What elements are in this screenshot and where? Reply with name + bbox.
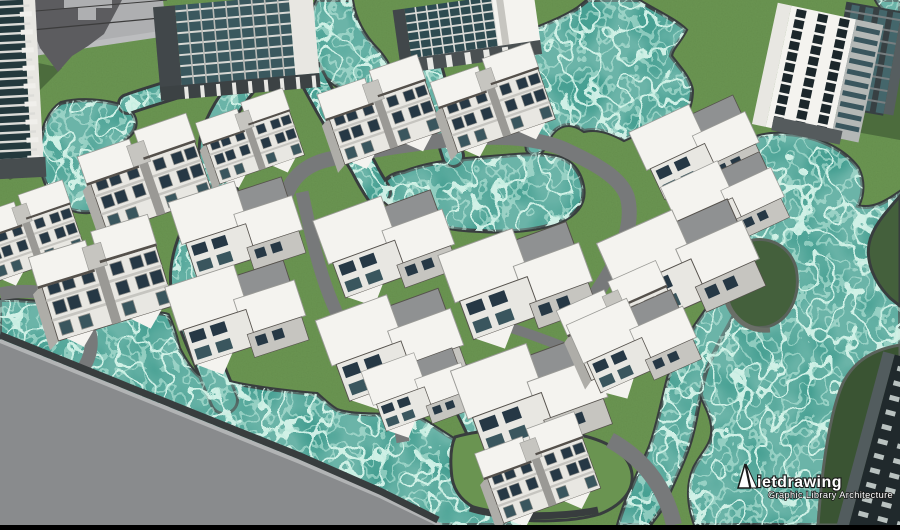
svg-text:ietdrawing: ietdrawing (757, 474, 842, 491)
svg-text:Graphic Library Architecture: Graphic Library Architecture (768, 490, 893, 500)
